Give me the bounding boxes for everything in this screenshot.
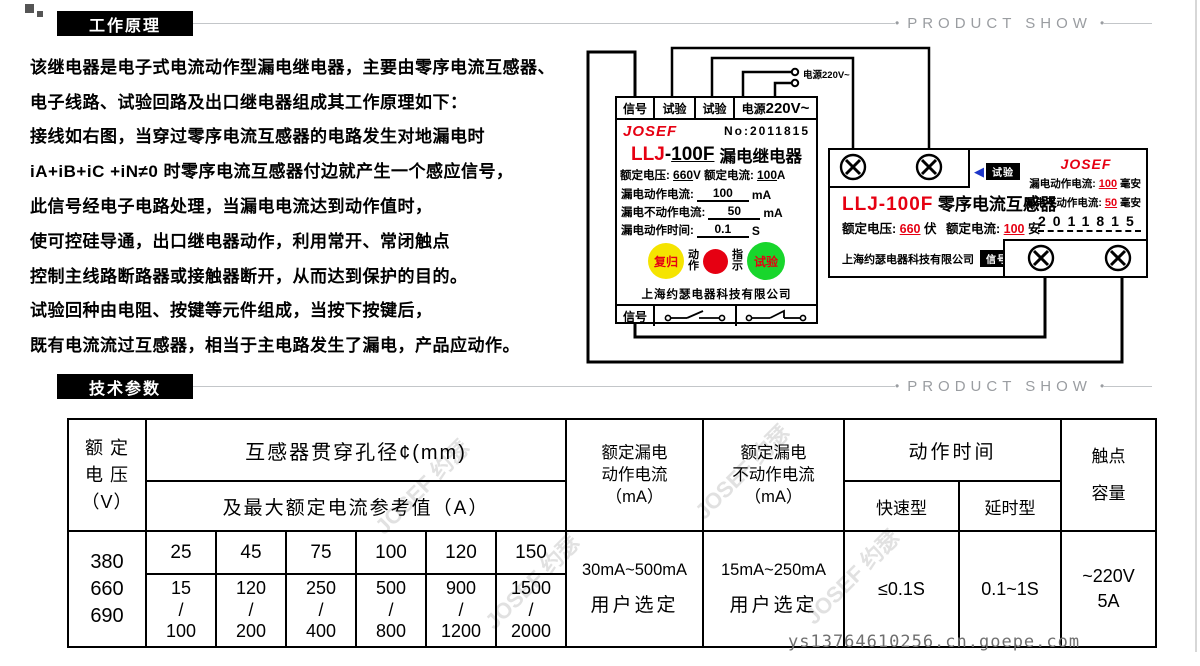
principle-line: 试验回种由电阻、按键等元件组成，当按下按键后， — [30, 296, 590, 321]
test-tag: ◀ 试验 — [974, 163, 1020, 180]
spec-row-action-current: 漏电动作电流: 100 mA — [617, 184, 816, 202]
power-terminal-dot — [792, 69, 798, 75]
header-rated-leak-action: 额定漏电 动作电流 （mA） — [567, 420, 702, 530]
rating-a-value: 100 — [757, 168, 777, 182]
trafo-company-row: 上海约瑟电器科技有限公司 信号 ▶ — [842, 250, 1030, 267]
terminal-test2: 试验 — [696, 98, 735, 118]
model-name: 漏电继电器 — [719, 143, 802, 167]
screw-terminal-icon — [838, 152, 868, 182]
rating-a-unit: 安 — [1028, 222, 1041, 236]
rule-bullet: • — [895, 16, 899, 30]
cell-current-range: 250 / 400 — [287, 575, 355, 646]
cell-diameter: 25 — [147, 532, 215, 573]
screw-terminal-icon — [914, 152, 944, 182]
brand-logo: JOSEF — [1030, 156, 1142, 172]
spec-unit: mA — [763, 206, 782, 220]
product-sheet-page: 工作原理 • PRODUCT SHOW • 该继电器是电子式电流动作型漏电继电器… — [0, 0, 1200, 666]
corner-mark — [25, 4, 34, 13]
header-aperture: 互感器贯穿孔径¢(mm) — [147, 420, 565, 480]
cell-current-range: 900 / 1200 — [427, 575, 495, 646]
product-show-label: PRODUCT SHOW — [907, 378, 1092, 395]
spec-unit: 毫安 — [1120, 178, 1141, 190]
rating-a-value: 100 — [1004, 222, 1025, 236]
noaction-range: 15mA~250mA — [721, 561, 826, 580]
cell-noaction-current: 15mA~250mA 用户选定 — [704, 532, 843, 646]
action-indicator-lamp — [703, 249, 728, 274]
header-action-time: 动作时间 — [845, 420, 1060, 480]
trafo-ratings: 额定电压: 660 伏 额定电流: 100 安 — [842, 218, 1041, 237]
spec-unit: 毫安 — [1120, 197, 1141, 209]
rule-line — [1104, 386, 1152, 387]
rule-line — [193, 386, 895, 387]
brand-logo: JOSEF — [623, 123, 677, 140]
screw-terminal-icon — [1103, 243, 1133, 273]
principle-line: iA+iB+iC +iN≠0 时零序电流互感器付边就产生一个感应信号， — [30, 157, 590, 182]
cell-current-range: 500 / 800 — [357, 575, 425, 646]
action-range: 30mA~500mA — [582, 561, 687, 580]
contact-nc-cell — [737, 306, 817, 326]
product-show-rule-bottom: • PRODUCT SHOW • — [193, 378, 1152, 394]
trafo-model-title: LLJ-100F 零序电流互感器 — [842, 190, 1057, 216]
serial-number: No:2011815 — [724, 124, 810, 138]
cell-contact-capacity: ~220V 5A — [1062, 532, 1155, 646]
rating-a-unit: A — [777, 170, 785, 182]
corner-mark — [37, 11, 43, 17]
transformer-bottom-terminal-box — [1003, 239, 1146, 276]
cell-fast-time: ≤0.1S — [845, 532, 958, 646]
test-tag-label: 试验 — [986, 163, 1020, 180]
rating-v-label: 额定电压: — [620, 170, 670, 182]
spec-label: 漏电动作电流: — [621, 186, 694, 202]
cell-diameter: 75 — [287, 532, 355, 573]
relay-ratings-line: 额定电压: 660V 额定电流: 100A — [617, 167, 816, 184]
relay-brand-row: JOSEF No:2011815 — [617, 120, 816, 142]
transformer-top-terminal-box — [830, 150, 970, 188]
spec-value: 0.1 — [697, 223, 749, 238]
relay-panel: 信号 试验 试验 电源 220V~ JOSEF No:2011815 LLJ -… — [615, 96, 818, 324]
model-code: LLJ-100F — [842, 194, 933, 215]
tech-params-table: 额 定 电 压 （V） 互感器贯穿孔径¢(mm) 及最大额定电流参考值（A） 额… — [67, 418, 1157, 648]
url-watermark: ys13764610256.cn.goepe.com — [788, 632, 1080, 652]
wire-power-a — [743, 72, 791, 96]
rating-a-label: 额定电流: — [704, 170, 754, 182]
spec-value: 50 — [708, 205, 760, 220]
test-button: 试验 — [747, 242, 785, 280]
spec-label: 漏电动作时间: — [621, 222, 694, 238]
relay-company: 上海约瑟电器科技有限公司 — [617, 284, 816, 304]
spec-label: 漏电不动作电流: — [621, 204, 705, 220]
cell-diameter: 150 — [497, 532, 565, 573]
relay-model-title: LLJ - 100F 漏电继电器 — [617, 142, 816, 167]
section-title-tech-params: 技术参数 — [57, 374, 193, 399]
cell-current-range: 15 / 100 — [147, 575, 215, 646]
rating-v-unit: V — [693, 170, 701, 182]
spec-row-noaction-current: 漏电不动作电流: 50 mA — [617, 202, 816, 220]
principle-line: 既有电流流过互感器，相当于主电路发生了漏电，产品应动作。 — [30, 331, 590, 356]
action-label: 动 作 — [688, 250, 699, 272]
rating-v-unit: 伏 — [924, 222, 937, 236]
page-right-border — [1195, 0, 1197, 652]
screw-terminal-icon — [1026, 243, 1056, 273]
cell-action-current: 30mA~500mA 用户选定 — [567, 532, 702, 646]
power-word: 电源 — [742, 100, 766, 117]
header-max-current-ref: 及最大额定电流参考值（A） — [147, 482, 565, 530]
power-terminal-dot — [792, 80, 798, 86]
company-name: 上海约瑟电器科技有限公司 — [842, 251, 974, 267]
principle-line: 此信号经电子电路处理，当漏电电流达到动作值时， — [30, 192, 590, 217]
power-volts: 220V~ — [766, 100, 810, 117]
principle-line: 电子线路、试验回路及出口继电器组成其工作原理如下： — [30, 88, 590, 113]
rating-v-label: 额定电压: — [842, 222, 896, 236]
product-show-label: PRODUCT SHOW — [907, 15, 1092, 32]
terminal-power: 电源 220V~ — [735, 98, 816, 118]
spec-unit: S — [752, 224, 760, 238]
left-arrow-icon: ◀ — [974, 165, 984, 178]
cell-diameter: 45 — [217, 532, 285, 573]
principle-line: 该继电器是电子式电流动作型漏电继电器，主要由零序电流互感器、 — [30, 53, 590, 78]
spec-value: 50 — [1105, 197, 1117, 209]
model-name: 零序电流互感器 — [938, 195, 1057, 214]
product-show-rule-top: • PRODUCT SHOW • — [193, 15, 1152, 31]
cell-delay-time: 0.1~1S — [960, 532, 1060, 646]
cell-diameter: 120 — [427, 532, 495, 573]
terminal-test1: 试验 — [655, 98, 696, 118]
header-delay-type: 延时型 — [960, 482, 1060, 530]
rule-line — [193, 23, 895, 24]
principle-line: 使可控硅导通，出口继电器动作，利用常开、常闭触点 — [30, 227, 590, 252]
transformer-panel: ◀ 试验 JOSEF 漏电动作电流: 100 毫安 漏电不动作电流: 50 毫安… — [828, 148, 1148, 278]
relay-contact-row: 信号 — [617, 304, 816, 326]
header-contact-capacity: 触点 容量 — [1062, 420, 1155, 530]
noaction-note: 用户选定 — [729, 590, 817, 617]
wire-power-b — [775, 83, 791, 96]
spec-unit: mA — [752, 188, 771, 202]
principle-line: 控制主线路断路器或接触器断开，从而达到保护的目的。 — [30, 262, 590, 287]
principle-line: 接线如右图，当穿过零序电流互感器的电路发生对地漏电时 — [30, 122, 590, 147]
contact-no-cell — [655, 306, 737, 326]
trafo-spec1: 漏电动作电流: 100 毫安 — [1029, 176, 1141, 191]
bottom-terminal-signal: 信号 — [617, 306, 655, 326]
header-fast-type: 快速型 — [845, 482, 958, 530]
rating-v-value: 660 — [673, 168, 693, 182]
spec-value: 100 — [1099, 178, 1117, 190]
indicate-label: 指 示 — [732, 250, 743, 272]
header-rated-leak-noaction: 额定漏电 不动作电流 （mA） — [704, 420, 843, 530]
section2-label: 技术参数 — [89, 375, 161, 399]
rule-bullet: • — [895, 379, 899, 393]
cell-current-range: 120 / 200 — [217, 575, 285, 646]
rating-v-value: 660 — [900, 222, 921, 236]
header-rated-voltage: 额 定 电 压 （V） — [69, 420, 145, 530]
spec-value: 100 — [697, 187, 749, 202]
cell-voltages: 380 660 690 — [69, 532, 145, 646]
relay-terminal-row: 信号 试验 试验 电源 220V~ — [617, 98, 816, 120]
relay-button-row: 复归 动 作 指 示 试验 — [617, 238, 816, 284]
rating-a-label: 额定电流: — [946, 222, 1000, 236]
model-suffix: 100F — [671, 144, 714, 166]
normally-open-contact-icon — [663, 308, 727, 324]
terminal-signal: 信号 — [617, 98, 655, 118]
normally-closed-contact-icon — [744, 308, 808, 324]
rule-line — [1104, 23, 1152, 24]
model-prefix: LLJ — [631, 144, 665, 166]
spec-label: 漏电动作电流: — [1029, 178, 1096, 190]
action-note: 用户选定 — [590, 590, 678, 617]
section1-label: 工作原理 — [89, 12, 161, 36]
power-source-label: 电源220V~ — [803, 67, 850, 81]
section-title-working-principle: 工作原理 — [57, 11, 193, 36]
reset-button: 复归 — [648, 243, 684, 279]
cell-current-range: 1500 / 2000 — [497, 575, 565, 646]
spec-row-action-time: 漏电动作时间: 0.1 S — [617, 220, 816, 238]
cell-diameter: 100 — [357, 532, 425, 573]
